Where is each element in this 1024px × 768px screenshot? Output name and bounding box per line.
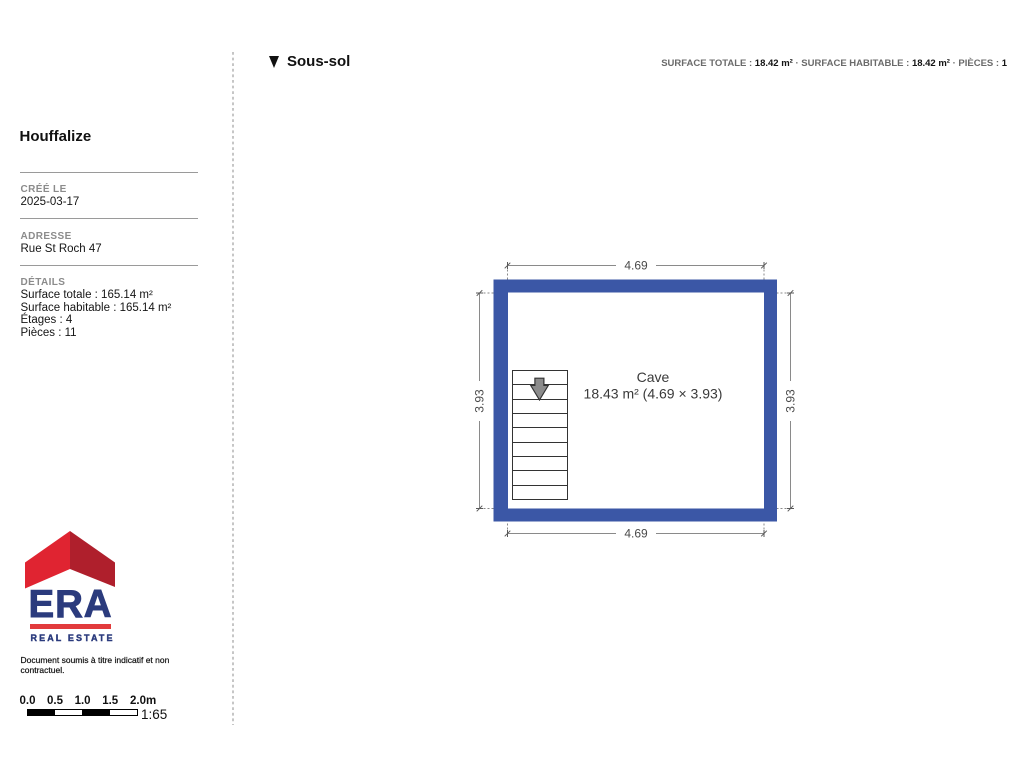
svg-text:3.93: 3.93 <box>784 389 798 413</box>
svg-text:18.43 m² (4.69 × 3.93): 18.43 m² (4.69 × 3.93) <box>584 386 723 402</box>
svg-text:4.69: 4.69 <box>624 259 648 273</box>
svg-text:3.93: 3.93 <box>473 389 487 413</box>
svg-text:4.69: 4.69 <box>624 527 648 541</box>
svg-text:Cave: Cave <box>637 369 670 385</box>
